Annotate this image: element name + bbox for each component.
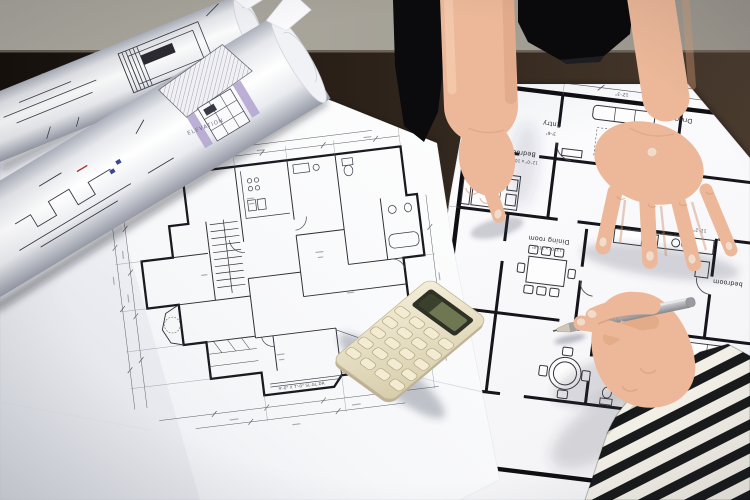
vignette-overlay xyxy=(0,0,750,500)
photo-scene: Entry 3'-6" Bedroom 12'-0" x 10'-6" Drwg… xyxy=(0,0,750,500)
blueprint-photo: Entry 3'-6" Bedroom 12'-0" x 10'-6" Drwg… xyxy=(0,0,750,500)
